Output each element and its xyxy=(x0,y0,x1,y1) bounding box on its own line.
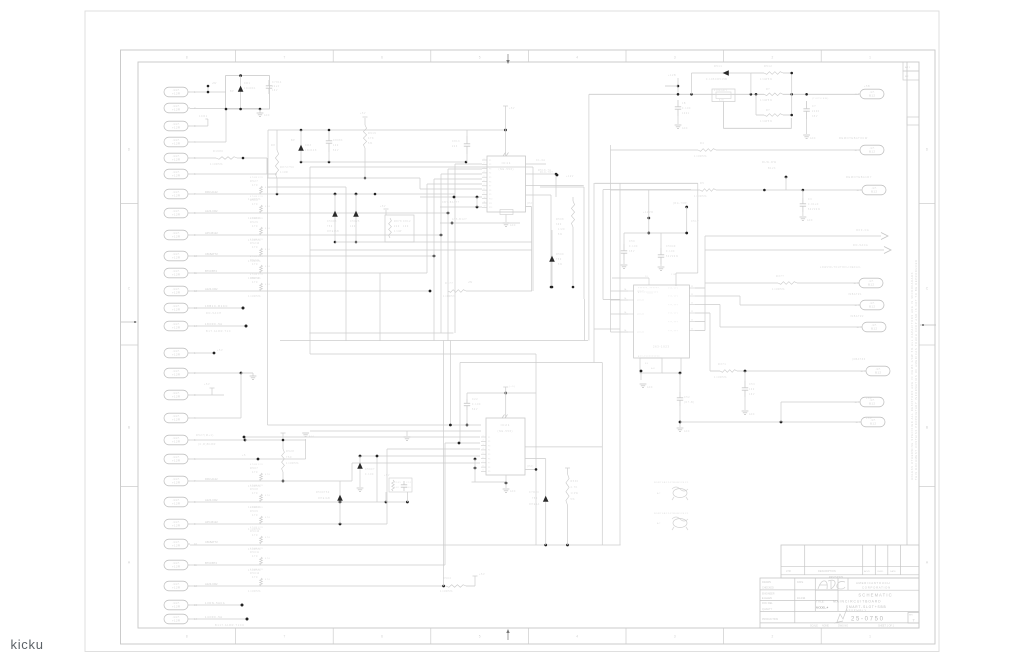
svg-text:R 5 2 10: R 5 2 10 xyxy=(250,242,260,245)
svg-text:CHKD: CHKD xyxy=(877,571,884,573)
svg-text:1 6 V: 1 6 V xyxy=(272,90,278,92)
svg-text:C 8 0 8 3: C 8 0 8 3 xyxy=(333,140,343,142)
svg-text:R 5 3 0: R 5 3 0 xyxy=(571,481,579,483)
svg-text:QUALITY: QUALITY xyxy=(762,608,773,611)
svg-text:5: 5 xyxy=(484,176,485,178)
svg-text:+ 5 V: + 5 V xyxy=(479,573,485,576)
svg-text:( P 2 ): ( P 2 ) xyxy=(527,203,533,205)
svg-text:A 0 0: A 0 0 xyxy=(510,224,516,227)
svg-text:O H E 1 A: O H E 1 A xyxy=(529,503,540,506)
svg-text:( + 5 ): ( + 5 ) xyxy=(509,386,515,388)
svg-text:CB-BATT2: CB-BATT2 xyxy=(205,540,218,544)
svg-text:1 / 4 W 5 %: 1 / 4 W 5 % xyxy=(248,590,261,593)
svg-text:R 5 0 7: R 5 0 7 xyxy=(250,467,258,470)
svg-text:4 7 6 R 1 2 3: 4 7 6 R 1 2 3 xyxy=(250,527,263,529)
svg-text:+ 1 2 R: + 1 2 R xyxy=(172,419,180,422)
svg-text:4 7 0: 4 7 0 xyxy=(252,281,258,284)
svg-text:C 5 0 2 5: C 5 0 2 5 xyxy=(350,221,360,223)
svg-text:1 0 0: 1 0 0 xyxy=(350,226,356,228)
svg-text:+ 5 V: + 5 V xyxy=(204,383,210,386)
svg-text:P3: P3 xyxy=(489,168,491,170)
svg-text:+ 1 2 R: + 1 2 R xyxy=(172,354,180,357)
svg-text:4 7 0: 4 7 0 xyxy=(252,555,258,558)
svg-text:R 5 2 12: R 5 2 12 xyxy=(250,277,260,280)
svg-text:7 5 0: 7 5 0 xyxy=(286,456,292,459)
svg-text:DRV-A122: DRV-A122 xyxy=(205,477,218,481)
svg-text:1 / 4 W: 1 / 4 W xyxy=(394,231,402,233)
svg-text:1 N 4 1 4 8: 1 N 4 1 4 8 xyxy=(305,150,317,152)
svg-text:A 0 0: A 0 0 xyxy=(264,114,270,117)
svg-text:R 3 7 ?: R 3 7 ? xyxy=(776,275,784,278)
svg-text:P9: P9 xyxy=(489,194,491,196)
svg-text:4 7 0: 4 7 0 xyxy=(252,246,258,249)
svg-text:+ 1 2 R: + 1 2 R xyxy=(172,587,180,590)
svg-text:2 5 - 0 7 5 0: 2 5 - 0 7 5 0 xyxy=(851,617,884,623)
svg-text:11: 11 xyxy=(484,201,486,203)
svg-text:R 1 6 8 0: R 1 6 8 0 xyxy=(213,150,223,153)
svg-text:1 / 4 W 5 %: 1 / 4 W 5 % xyxy=(286,462,299,465)
svg-text:ENGINEER: ENGINEER xyxy=(762,593,775,596)
svg-text:1 0 0 1: 1 0 0 1 xyxy=(682,113,690,115)
svg-text:10-4-94: 10-4-94 xyxy=(797,597,806,600)
svg-text:A 0 0: A 0 0 xyxy=(647,386,653,389)
svg-text:4 7 0: 4 7 0 xyxy=(265,558,271,560)
svg-text:A 7 1: A 7 1 xyxy=(905,66,911,69)
svg-text:1: 1 xyxy=(869,635,871,639)
svg-text:CHECKED: CHECKED xyxy=(762,587,774,590)
svg-text:22: 22 xyxy=(691,294,693,296)
svg-text:6: 6 xyxy=(381,56,383,60)
svg-text:R 1 0 - 7 6 ?: R 1 0 - 7 6 ? xyxy=(540,172,553,174)
svg-text:+ 1 2 R: + 1 2 R xyxy=(172,93,180,96)
svg-text:+ 5 V: + 5 V xyxy=(380,206,386,208)
svg-text:P8: P8 xyxy=(489,190,491,192)
svg-text:R 5: R 5 xyxy=(700,182,704,185)
svg-text:0 . 1 0 0: 0 . 1 0 0 xyxy=(666,251,675,253)
svg-text:DRAWN: DRAWN xyxy=(762,581,771,584)
svg-text:C???-??: C???-?? xyxy=(637,291,644,293)
svg-text:+5V: +5V xyxy=(468,282,473,284)
svg-text:B 1 2: B 1 2 xyxy=(871,191,877,194)
svg-text:( 0 B A T # 3: ( 0 B A T # 3 xyxy=(852,358,866,361)
svg-text:A 0 0: A 0 0 xyxy=(682,127,688,130)
svg-text:5 %: 5 % xyxy=(558,234,562,236)
svg-text:22: 22 xyxy=(691,320,693,322)
svg-text:APC-B122: APC-B122 xyxy=(205,231,218,235)
svg-text:1 / 4 W 5 %: 1 / 4 W 5 % xyxy=(760,100,772,102)
svg-text:7: 7 xyxy=(284,635,286,639)
svg-text:I N B A T # 2: I N B A T # 2 xyxy=(850,315,864,318)
svg-text:4 7 6 R 1 2 3: 4 7 6 R 1 2 3 xyxy=(250,507,263,509)
svg-text:R E M O T E B A 1 R Y: R E M O T E B A 1 R Y xyxy=(846,176,872,179)
svg-text:? ? ? - ? ? ?: ? ? ? - ? ? ? xyxy=(668,288,678,290)
svg-text:4 7 0: 4 7 0 xyxy=(252,184,258,187)
svg-text:C 5 2: C 5 2 xyxy=(684,397,690,399)
svg-text:B P: B P xyxy=(230,91,234,93)
svg-text:DWG NO: DWG NO xyxy=(838,625,848,628)
svg-text:0 . 1 0 0: 0 . 1 0 0 xyxy=(629,246,638,248)
svg-text:+ 5 V: + 5 V xyxy=(217,349,223,352)
svg-text:22: 22 xyxy=(691,329,693,331)
svg-text:R 5 2 8: R 5 2 8 xyxy=(286,450,294,453)
svg-text:C 5 1 7: C 5 1 7 xyxy=(406,482,414,484)
svg-text:C O R P O R A T I O N: C O R P O R A T I O N xyxy=(862,586,890,590)
svg-text:1 B: 1 B xyxy=(682,103,686,105)
svg-text:P3: P3 xyxy=(488,445,490,447)
svg-text:5: 5 xyxy=(479,56,481,60)
svg-text:4 7 0: 4 7 0 xyxy=(252,203,258,206)
svg-text:P1: P1 xyxy=(489,160,491,162)
svg-text:( O ? - B ): ( O ? - B ) xyxy=(684,402,694,404)
svg-text:L O W V O L T O U T O F L: L O W V O L T O U T O F L I N E F A I L xyxy=(820,266,861,269)
svg-text:4 7 0: 4 7 0 xyxy=(252,471,258,474)
svg-text:C 5 0 0 ?: C 5 0 0 ? xyxy=(365,469,375,471)
svg-text:2 2 0 0: 2 2 0 0 xyxy=(812,111,820,113)
svg-text:+5V: +5V xyxy=(212,82,217,85)
svg-text:7 5 0: 7 5 0 xyxy=(532,498,538,500)
svg-text:C 5 0: C 5 0 xyxy=(629,241,635,243)
svg-text:R 8 7 2 7 5 0: R 8 7 2 7 5 0 xyxy=(280,166,294,169)
svg-text:P4: P4 xyxy=(488,450,490,452)
svg-text:7: 7 xyxy=(284,56,286,60)
svg-text:4: 4 xyxy=(483,448,484,450)
svg-text:C 5 1 ?: C 5 1 ? xyxy=(691,221,699,223)
svg-text:8: 8 xyxy=(484,188,485,190)
svg-text:5: 5 xyxy=(479,635,481,639)
svg-text:1 6 V: 1 6 V xyxy=(749,394,755,396)
svg-text:2: 2 xyxy=(483,440,484,442)
svg-text:A S S E M B L Y: A S S E M B L Y xyxy=(846,609,866,613)
svg-text:1 / 2 0: 1 / 2 0 xyxy=(558,229,565,231)
svg-text:0 . 0 1 u F: 0 . 0 1 u F xyxy=(808,204,819,206)
svg-text:A123-CR2: A123-CR2 xyxy=(205,287,218,291)
svg-text:4 7 0: 4 7 0 xyxy=(265,495,271,497)
svg-text:BTCFBT2: BTCFBT2 xyxy=(205,561,217,565)
svg-text:3 5 V: 3 5 V xyxy=(812,116,818,118)
svg-text:P5: P5 xyxy=(488,454,490,456)
svg-text:TITLE:: TITLE: xyxy=(816,599,825,603)
svg-text:A A 1: A A 1 xyxy=(651,367,655,370)
svg-text:1 / 4 W 5 %: 1 / 4 W 5 % xyxy=(772,288,785,291)
svg-text:R 9 1 9: R 9 1 9 xyxy=(368,132,376,135)
svg-text:A 0 0: A 0 0 xyxy=(309,435,315,438)
svg-text:P5: P5 xyxy=(489,177,491,179)
svg-text:P1: P1 xyxy=(488,437,490,439)
svg-text:4 7 0: 4 7 0 xyxy=(252,492,258,495)
svg-text:0 . 1 0 0: 0 . 1 0 0 xyxy=(365,474,374,476)
svg-text:C 8 1 2: C 8 1 2 xyxy=(403,221,411,223)
svg-text:R 3 7 1: R 3 7 1 xyxy=(718,363,726,366)
svg-text:1 8 B 1 C - R 1 C C: 1 8 B 1 C - R 1 C C xyxy=(205,304,227,308)
svg-text:B 1 2: B 1 2 xyxy=(869,403,875,406)
svg-text:0 . 1 9 5 C R 5 1 5 B: 0 . 1 9 5 C R 5 1 5 B xyxy=(706,79,727,81)
svg-text:B P: B P xyxy=(291,140,295,142)
svg-text:R 4 7 7: R 4 7 7 xyxy=(445,282,453,285)
svg-text:4: 4 xyxy=(576,635,578,639)
svg-text:7: 7 xyxy=(484,184,485,186)
svg-text:( R G - 7 6 B ): ( R G - 7 6 B ) xyxy=(673,203,688,205)
svg-text:+ 1 2 R: + 1 2 R xyxy=(172,606,180,609)
svg-text:P2: P2 xyxy=(489,164,491,166)
svg-text:C R 3: C R 3 xyxy=(305,145,312,147)
svg-text:4 7 0: 4 7 0 xyxy=(265,579,271,581)
svg-text:4 7 6 R 1 2 3: 4 7 6 R 1 2 3 xyxy=(250,464,263,466)
svg-text:R 5 2 9: R 5 2 9 xyxy=(250,221,258,224)
svg-text:R 5 0 11: R 5 0 11 xyxy=(250,551,260,554)
svg-text:3 9 0: 3 9 0 xyxy=(556,224,562,226)
svg-text:3: 3 xyxy=(483,444,484,446)
svg-text:7 5 0: 7 5 0 xyxy=(556,259,562,261)
svg-text:A 0 0: A 0 0 xyxy=(684,430,690,433)
svg-text:DATE: DATE xyxy=(890,570,896,573)
svg-text:C 1 - 0 A: C 1 - 0 A xyxy=(536,159,545,162)
svg-text:+ 1 2 R: + 1 2 R xyxy=(172,620,180,623)
svg-text:N 5 R T 6 B 1 2 4 T R 6 B 1 2: N 5 R T 6 B 1 2 4 T R 6 B 1 2 4 C 1 xyxy=(654,513,689,515)
svg-text:( T O P V I E W ): ( T O P V I E W ) xyxy=(812,98,829,100)
svg-text:+ 1 2 R: + 1 2 R xyxy=(172,257,180,260)
svg-text:REVISIONS: REVISIONS xyxy=(829,575,843,579)
svg-text:SHEET 1 OF 1: SHEET 1 OF 1 xyxy=(878,625,895,628)
svg-text:6: 6 xyxy=(381,635,383,639)
svg-text:C R 1: C R 1 xyxy=(244,83,251,85)
svg-text:9: 9 xyxy=(483,470,484,472)
svg-text:1 0 0: 1 0 0 xyxy=(403,226,409,228)
svg-text:B 1 2: B 1 2 xyxy=(869,151,875,154)
svg-text:A M E R I C A N T O U C H: A M E R I C A N T O U C H xyxy=(856,581,889,585)
svg-text:C 5 0 4 9: C 5 0 4 9 xyxy=(666,246,676,248)
svg-text:( N E - 5 5 6 ): ( N E - 5 5 6 ) xyxy=(497,430,512,433)
svg-text:3: 3 xyxy=(674,635,676,639)
svg-text:1 / 4 W: 1 / 4 W xyxy=(280,171,288,174)
svg-text:R 5 0 9: R 5 0 9 xyxy=(556,254,564,256)
svg-text:B 1 2: B 1 2 xyxy=(869,306,875,309)
svg-text:3: 3 xyxy=(484,167,485,169)
svg-text:R L W - D W: R L W - D W xyxy=(762,161,777,164)
svg-text:+ 5 V: + 5 V xyxy=(384,475,390,477)
svg-text:A ? 5 - B 1 2 ?: A ? 5 - B 1 2 ? xyxy=(452,218,467,221)
svg-text:8: 8 xyxy=(483,465,484,467)
svg-text:5 %: 5 % xyxy=(558,264,562,266)
svg-text:P9: P9 xyxy=(488,471,490,473)
svg-text:5: 5 xyxy=(483,453,484,455)
svg-text:C 7 8 1 4: C 7 8 1 4 xyxy=(272,82,282,84)
svg-text:+ 5 V: + 5 V xyxy=(509,108,515,110)
svg-text:5 0 V 2 0 %: 5 0 V 2 0 % xyxy=(666,256,678,258)
svg-text:+ 1 2 R: + 1 2 R xyxy=(172,374,180,377)
svg-text:4: 4 xyxy=(484,171,485,173)
svg-text:3: 3 xyxy=(674,56,676,60)
svg-text:R 4: R 4 xyxy=(700,142,704,145)
svg-text:8: 8 xyxy=(186,56,188,60)
svg-text:C ? R 2 0: C ? R 2 0 xyxy=(529,492,539,494)
svg-text:+ 1 2 R: + 1 2 R xyxy=(172,566,180,569)
svg-text:1 0 K: 1 0 K xyxy=(394,487,399,489)
svg-text:+ 1 2 R: + 1 2 R xyxy=(172,327,180,330)
svg-text:A 0 0: A 0 0 xyxy=(510,490,516,493)
svg-text:C B ? - B A T T ?: C B ? - B A T T ? xyxy=(442,201,460,204)
svg-text:2: 2 xyxy=(772,56,774,60)
svg-text:7: 7 xyxy=(483,461,484,463)
svg-text:I N B A T # 1: I N B A T # 1 xyxy=(848,293,862,296)
svg-text:12: 12 xyxy=(484,206,486,208)
svg-text:B 1 2: B 1 2 xyxy=(871,328,877,331)
svg-text:P8: P8 xyxy=(488,467,490,469)
svg-text:C???-??: C???-?? xyxy=(637,300,644,302)
svg-text:4 7 6 R 1 2 3: 4 7 6 R 1 2 3 xyxy=(250,177,263,179)
svg-text:? ? ? - ? ? ?: ? ? ? - ? ? ? xyxy=(668,296,678,298)
svg-text:1 / 4 W 5 %: 1 / 4 W 5 % xyxy=(694,195,707,198)
svg-text:R 5 0 4: R 5 0 4 xyxy=(443,577,451,580)
svg-text:4 7 6 R 1 2 3: 4 7 6 R 1 2 3 xyxy=(250,548,263,550)
svg-text:DOC REL: DOC REL xyxy=(762,602,773,605)
svg-text:P10: P10 xyxy=(489,199,492,201)
svg-text:B 1 2: B 1 2 xyxy=(868,284,874,287)
svg-text:+ 1 2 R: + 1 2 R xyxy=(172,309,180,312)
svg-text:B 1 1 7 . A 1 R R . T 1 C C: B 1 1 7 . A 1 R R . T 1 C C xyxy=(215,624,244,627)
svg-text:R 5 0 8: R 5 0 8 xyxy=(556,219,564,221)
svg-text:B 1 2: B 1 2 xyxy=(869,95,875,98)
svg-text:R 8 7 8: R 8 7 8 xyxy=(394,221,402,223)
svg-text:+ 1 2 R: + 1 2 R xyxy=(172,175,180,178)
svg-text:+ 1 2 R: + 1 2 R xyxy=(172,503,180,506)
svg-text:+ 5 B: + 5 B xyxy=(864,85,870,88)
svg-text:R 5 2 8: R 5 2 8 xyxy=(250,199,258,202)
svg-text:5 0 V: 5 0 V xyxy=(333,150,339,152)
svg-text:1 / 4 W 5 %: 1 / 4 W 5 % xyxy=(210,163,223,166)
svg-text:+ 1 2 R: + 1 2 R xyxy=(172,274,180,277)
svg-text:1 C R 1: 1 C R 1 xyxy=(199,115,208,118)
svg-text:4 7 0: 4 7 0 xyxy=(265,537,271,539)
svg-text:R 5 0 0 7 5 0: R 5 0 0 7 5 0 xyxy=(316,492,330,494)
svg-text:2 2 0: 2 2 0 xyxy=(394,226,400,228)
svg-text:DATE: DATE xyxy=(797,581,804,584)
svg-text:C 2 2: C 2 2 xyxy=(472,399,478,401)
svg-text:+ 1 2 R: + 1 2 R xyxy=(172,236,180,239)
svg-text:P12: P12 xyxy=(489,207,492,209)
svg-text:4 7 0: 4 7 0 xyxy=(252,576,258,579)
svg-text:R 5 0 12: R 5 0 12 xyxy=(250,572,260,575)
svg-text:5 0 V: 5 0 V xyxy=(472,409,478,411)
svg-text:APVD: APVD xyxy=(864,570,870,573)
svg-text:1 / 4 W 5 %: 1 / 4 W 5 % xyxy=(760,79,772,81)
svg-text:3 5 V: 3 5 V xyxy=(629,251,635,253)
svg-text:B 1 2: B 1 2 xyxy=(875,372,881,375)
svg-text:0 . 1 0 0: 0 . 1 0 0 xyxy=(682,108,691,110)
svg-text:? ? ? - ? ? ?: ? ? ? - ? ? ? xyxy=(668,304,678,306)
svg-text:R 5 1 1: R 5 1 1 xyxy=(714,65,722,68)
svg-text:A123-CR2: A123-CR2 xyxy=(205,209,218,213)
svg-text:DESCRIPTION: DESCRIPTION xyxy=(818,569,836,573)
svg-text:+ 1 2 R: + 1 2 R xyxy=(172,292,180,295)
svg-text:A 0 0: A 0 0 xyxy=(807,219,813,222)
svg-text:+ 1 2 R: + 1 2 R xyxy=(172,396,180,399)
svg-text:NONE: NONE xyxy=(822,625,829,628)
svg-text:4 . 7 K: 4 . 7 K xyxy=(571,487,578,489)
svg-text:S C H E M A T I C: S C H E M A T I C xyxy=(858,593,891,598)
svg-text:1 / 4 W 5 %: 1 / 4 W 5 % xyxy=(694,155,707,158)
svg-text:C???-??: C???-?? xyxy=(637,314,644,316)
svg-text:APC-B122: APC-B122 xyxy=(205,520,218,524)
svg-text:R 5 2 7 ( M + 1 ): R 5 2 7 ( M + 1 ) xyxy=(196,434,214,437)
svg-text:4 7 6 R 1 2 3: 4 7 6 R 1 2 3 xyxy=(250,274,263,276)
svg-text:2 6 3 - 1 0 2 3: 2 6 3 - 1 0 2 3 xyxy=(653,345,670,349)
svg-text:C???-??: C???-?? xyxy=(637,332,644,334)
svg-text:1 / 4 W 5 %: 1 / 4 W 5 % xyxy=(248,295,261,298)
svg-text:P4: P4 xyxy=(489,173,491,175)
svg-text:6: 6 xyxy=(484,180,485,182)
svg-text:A 0 0: A 0 0 xyxy=(810,137,816,140)
svg-text:R 5 0 9: R 5 0 9 xyxy=(250,510,258,513)
svg-text:( P 2 ): ( P 2 ) xyxy=(527,466,533,468)
svg-text:4 7 0: 4 7 0 xyxy=(252,514,258,517)
svg-text:+ 1 2 V: + 1 2 V xyxy=(566,176,574,178)
svg-text:B 1 2: B 1 2 xyxy=(870,423,876,426)
svg-text:O H E I A B: O H E I A B xyxy=(327,230,339,233)
svg-text:D N - 5 A C H: D N - 5 A C H xyxy=(206,312,221,315)
svg-text:22: 22 xyxy=(691,311,693,313)
svg-text:+ 1 2 R: + 1 2 R xyxy=(172,159,180,162)
svg-text:4 7 6 R 1 2 3: 4 7 6 R 1 2 3 xyxy=(250,239,263,241)
svg-text:R 5 1 2: R 5 1 2 xyxy=(764,65,772,68)
svg-text:A 1 B: A 1 B xyxy=(719,99,724,102)
svg-text:1 1 B: 1 1 B xyxy=(671,274,676,276)
svg-text:P6: P6 xyxy=(489,181,491,183)
svg-text:1 / 4 W 5 %: 1 / 4 W 5 % xyxy=(760,121,772,123)
svg-text:MODEL #: MODEL # xyxy=(816,606,829,610)
svg-text:1 N 4 0 0 1: 1 N 4 0 0 1 xyxy=(244,88,256,90)
svg-text:2: 2 xyxy=(484,163,485,165)
svg-text:10: 10 xyxy=(484,197,486,199)
svg-text:E ALLEN: E ALLEN xyxy=(762,597,772,600)
svg-text:22: 22 xyxy=(691,303,693,305)
svg-text:+ 1 2 R: + 1 2 R xyxy=(172,525,180,528)
svg-text:K 1 R E L A Y 1: K 1 R E L A Y 1 xyxy=(714,89,727,92)
svg-text:1: 1 xyxy=(483,435,484,437)
svg-text:+ 1 2 R: + 1 2 R xyxy=(172,127,180,130)
svg-text:2 2 3: 2 2 3 xyxy=(452,146,458,148)
svg-text:DRV-A122: DRV-A122 xyxy=(205,190,218,194)
svg-text:? ? ? ? ? ? . . ? ? ? ? ? ?: ? ? ? ? ? ? . . ? ? ? ? ? ? . xyxy=(638,288,660,290)
svg-text:4 7 6 R 1 2 3: 4 7 6 R 1 2 3 xyxy=(250,218,263,220)
svg-text:1 / 4 W 5 %: 1 / 4 W 5 % xyxy=(443,295,456,298)
svg-text:B 1 T . A 1 R R . T 1 C: B 1 T . A 1 R R . T 1 C xyxy=(206,330,231,333)
svg-text:1 4 O F F - 5 A: 1 4 O F F - 5 A xyxy=(205,615,222,619)
svg-text:7 5 0: 7 5 0 xyxy=(327,226,333,228)
svg-text:4 7 0: 4 7 0 xyxy=(252,263,258,266)
svg-text:R 8: R 8 xyxy=(271,144,275,147)
svg-text:4 7 0: 4 7 0 xyxy=(265,517,271,519)
svg-text:R E M O T E B A T # C W: R E M O T E B A T # C W xyxy=(839,137,868,140)
svg-text:C 5 3: C 5 3 xyxy=(749,384,755,386)
svg-text:I C 1 1: I C 1 1 xyxy=(502,161,511,165)
svg-text:1 3 D N - 5 A C A: 1 3 D N - 5 A C A xyxy=(205,601,225,605)
svg-text:N 5 R T 6 B 1 2 4 T R 6 B 1 2: N 5 R T 6 B 1 2 4 T R 6 B 1 2 4 C 1 xyxy=(654,482,689,484)
svg-text:PRODUCTION: PRODUCTION xyxy=(762,618,778,621)
svg-text:? ? ? - ? ? ?: ? ? ? - ? ? ? xyxy=(668,330,678,332)
svg-text:2: 2 xyxy=(772,635,774,639)
svg-text:1 / 4 W 5 %: 1 / 4 W 5 % xyxy=(440,590,453,593)
svg-text:1: 1 xyxy=(484,158,485,160)
svg-text:D N - 5 A C A: D N - 5 A C A xyxy=(853,244,868,247)
svg-text:BTCFBT2: BTCFBT2 xyxy=(205,269,217,273)
svg-text:R 5 0 10: R 5 0 10 xyxy=(250,530,260,533)
svg-text:4: 4 xyxy=(576,56,578,60)
svg-text:1 8 O F F - 5 A: 1 8 O F F - 5 A xyxy=(205,322,222,326)
svg-text:UNLESS OTHERWISE SPECIFIED ALL: UNLESS OTHERWISE SPECIFIED ALL RESISTORS… xyxy=(910,272,914,480)
svg-text:? ? ? - ? ? ?: ? ? ? - ? ? ? xyxy=(668,313,678,315)
svg-text:I C 2 1: I C 2 1 xyxy=(501,423,510,427)
svg-text:P7: P7 xyxy=(488,463,490,465)
